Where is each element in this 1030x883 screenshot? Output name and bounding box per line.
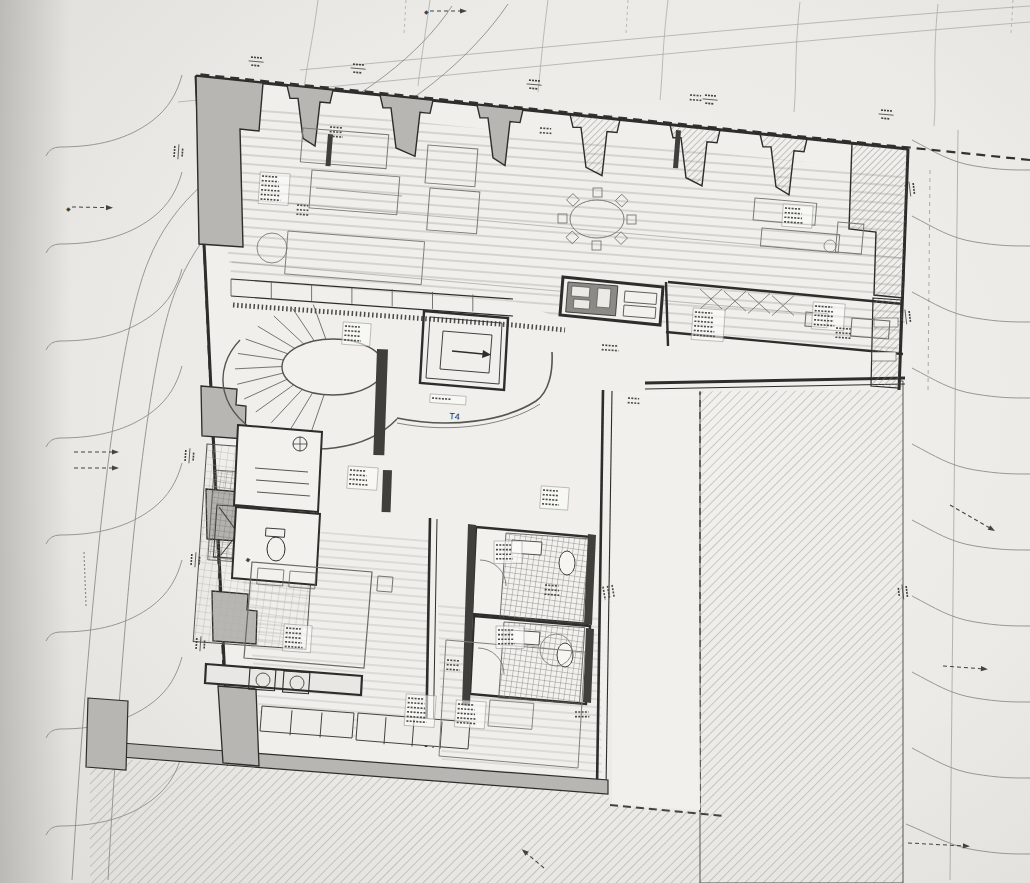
hatched-site-area [700,381,903,883]
kitchen-wc-block [560,277,663,325]
scanned-floor-plan: T4 ◆ ◆ ◆ [0,0,1030,883]
dimension-annotation [494,541,522,563]
paper-left-shadow [0,0,70,883]
survey-marker-icon: ◆ [424,9,429,15]
dimension-annotation [258,172,290,206]
terrace [612,392,700,810]
toilet [559,551,575,575]
bathroom-pod-a [472,527,592,624]
dimension-annotation [454,700,486,729]
dimension-annotation [782,204,813,228]
dimension-annotation [347,466,378,490]
dimension-annotation [282,624,312,653]
wc-pods [232,425,322,585]
floor-plan-drawing: T4 ◆ ◆ ◆ [0,0,1030,883]
dimension-annotation [691,308,725,342]
dimension-annotation [404,694,436,728]
dimension-annotation [496,626,524,648]
bathroom-pod-b [470,616,590,704]
dimension-annotation [342,322,371,346]
dimension-annotation [540,486,569,510]
bottom-corner-pier [86,698,128,770]
dimension-annotation [811,302,845,331]
room-label-t4: T4 [449,411,460,422]
survey-marker-icon: ◆ [66,206,71,212]
